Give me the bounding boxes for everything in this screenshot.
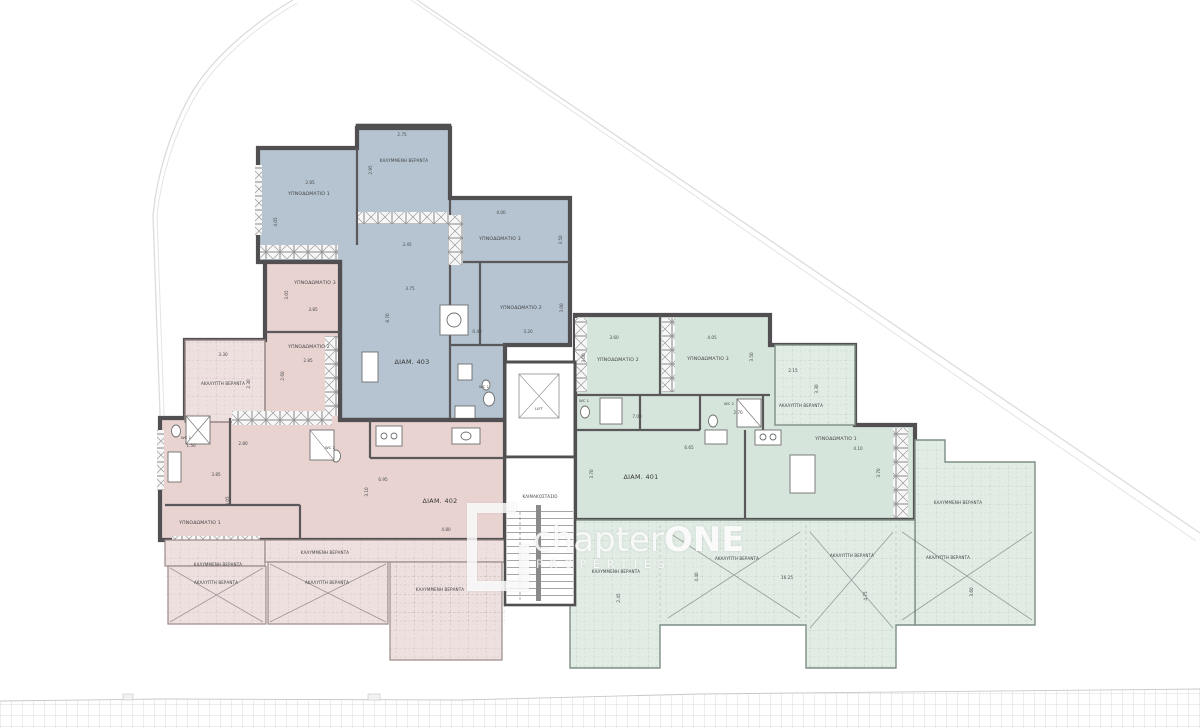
- room-label: ΥΠΝΟΔΩΜΑΤΙΟ 3: [293, 280, 336, 286]
- room-label: ΚΑΛΥΜΜΕΝΗ ΒΕΡΑΝΤΑ: [194, 562, 242, 567]
- dimension-label: 2.30: [246, 379, 251, 389]
- dimension-label: 3.00: [581, 353, 586, 363]
- room-label: ΥΠΝΟΔΩΜΑΤΙΟ 3: [686, 356, 729, 362]
- dimension-label: 8.70: [385, 313, 390, 323]
- staircase-label: ΚΛΙΜΑΚΟΣΤΑΣΙΟ: [522, 494, 557, 499]
- room-label: ΚΑΛΥΜΜΕΝΗ ΒΕΡΑΝΤΑ: [416, 587, 464, 592]
- dimension-label: 2.95: [368, 165, 373, 175]
- dimension-label: 2.45: [616, 593, 621, 603]
- room-label: WC 1: [479, 384, 490, 389]
- dimension-label: 3.30: [814, 384, 819, 394]
- dimension-label: 3.70: [876, 468, 881, 478]
- dimension-label: 7.00: [632, 414, 642, 419]
- room-label: ΥΠΝΟΔΩΜΑΤΙΟ 2: [287, 344, 330, 350]
- dimension-label: 4.00: [496, 210, 506, 215]
- dimension-label: 6.95: [378, 477, 388, 482]
- dimension-label: 2.75: [397, 132, 407, 137]
- dimension-label: 4.80: [441, 527, 451, 532]
- window-band: [260, 245, 338, 259]
- window-band: [157, 430, 164, 490]
- watermark-brand: chapterONE: [533, 520, 744, 560]
- dimension-label: 3.75: [405, 286, 415, 291]
- floor-plan-page: ΔΙΑΜ. 403 ΥΠΝΟΔΩΜΑΤΙΟ 1 ΥΠΝΟΔΩΜΑΤΙΟ 3 ΥΠ…: [0, 0, 1200, 728]
- apartment-name: ΔΙΑΜ. 402: [422, 497, 457, 505]
- dimension-label: 3.45: [402, 242, 412, 247]
- dimension-label: 3.20: [523, 329, 533, 334]
- room-label: WC 2: [724, 401, 735, 406]
- dimension-label: 3.60: [969, 587, 974, 597]
- watermark-subtitle: PROPERTIES: [536, 557, 671, 571]
- room-label: ΑΚΑΛΥΠΤΗ ΒΕΡΑΝΤΑ: [926, 555, 970, 560]
- room-label: WC 1: [579, 398, 590, 403]
- room-label: ΚΑΛΥΜΜΕΝΗ ΒΕΡΑΝΤΑ: [380, 158, 428, 163]
- verandas-402: [165, 540, 505, 660]
- dimension-label: 4.75: [863, 591, 868, 601]
- dimension-label: 3.85: [211, 472, 221, 477]
- dimension-label: 2.70: [733, 410, 743, 415]
- dimension-label: 3.70: [589, 469, 594, 479]
- closet-band: [893, 428, 908, 518]
- watermark-brand-light: chapter: [533, 520, 664, 560]
- road-strip: [0, 689, 1200, 728]
- room-label: ΥΠΝΟΔΩΜΑΤΙΟ 2: [596, 357, 639, 363]
- room-label: ΥΠΝΟΔΩΜΑΤΙΟ 1: [287, 191, 330, 197]
- apartment-name: ΔΙΑΜ. 403: [394, 358, 429, 366]
- dimension-label: 2.15: [788, 368, 798, 373]
- dimension-label: 3.50: [749, 352, 754, 362]
- room-label: ΑΚΑΛΥΠΤΗ ΒΕΡΑΝΤΑ: [194, 580, 238, 585]
- lift-label: LIFT: [535, 406, 543, 411]
- watermark-brand-bold: ONE: [664, 520, 745, 560]
- window-band: [255, 165, 262, 235]
- dimension-label: 2.85: [305, 180, 315, 185]
- room-label: WC 1: [181, 435, 192, 440]
- dimension-label: 2.85: [303, 358, 313, 363]
- dimension-label: 1.50: [186, 443, 196, 448]
- dimension-label: 3.05: [225, 496, 230, 506]
- floor-plan-drawing: ΔΙΑΜ. 403 ΥΠΝΟΔΩΜΑΤΙΟ 1 ΥΠΝΟΔΩΜΑΤΙΟ 3 ΥΠ…: [0, 0, 1200, 728]
- dimension-label: 4.10: [853, 446, 863, 451]
- dimension-label: 4.05: [707, 335, 717, 340]
- room-label: ΑΚΑΛΥΠΤΗ ΒΕΡΑΝΤΑ: [201, 381, 245, 386]
- room-label: ΚΑΛΥΜΜΕΝΗ ΒΕΡΑΝΤΑ: [301, 550, 349, 555]
- room-label: ΥΠΝΟΔΩΜΑΤΙΟ 1: [178, 520, 221, 526]
- dimension-label: 3.00: [559, 303, 564, 313]
- apartment-401-green: [570, 315, 1035, 668]
- dimension-label: 3.05: [284, 290, 289, 300]
- dimension-label: 3.60: [609, 335, 619, 340]
- room-label: ΥΠΝΟΔΩΜΑΤΙΟ 1: [814, 436, 857, 442]
- dimension-label: 2.60: [280, 371, 285, 381]
- dimension-label: 2.80: [238, 441, 248, 446]
- dimension-label: 3.30: [218, 352, 228, 357]
- dimension-label: 4.40: [694, 572, 699, 582]
- room-label: WC 2: [325, 445, 336, 450]
- room-label: ΚΑΛΥΜΜΕΝΗ ΒΕΡΑΝΤΑ: [934, 500, 982, 505]
- dimension-label: 3.85: [308, 307, 318, 312]
- dimension-label: 3.50: [558, 235, 563, 245]
- dimension-label: 0.40: [472, 329, 482, 334]
- room-label: ΑΚΑΛΥΠΤΗ ΒΕΡΑΝΤΑ: [830, 553, 874, 558]
- apartment-name: ΔΙΑΜ. 401: [623, 473, 658, 481]
- dimension-label: 3.10: [364, 487, 369, 497]
- room-label: ΥΠΝΟΔΩΜΑΤΙΟ 2: [499, 305, 542, 311]
- closet-band: [232, 411, 332, 425]
- dimension-label: 4.05: [273, 217, 278, 227]
- dimension-label: 16.25: [781, 575, 793, 580]
- closet-band: [448, 215, 463, 265]
- room-label: ΑΚΑΛΥΠΤΗ ΒΕΡΑΝΤΑ: [779, 403, 823, 408]
- room-label: ΥΠΝΟΔΩΜΑΤΙΟ 3: [478, 236, 521, 242]
- dimension-label: 6.65: [684, 445, 694, 450]
- room-label: ΑΚΑΛΥΠΤΗ ΒΕΡΑΝΤΑ: [305, 580, 349, 585]
- closet-band: [662, 318, 675, 392]
- window-band: [358, 212, 449, 224]
